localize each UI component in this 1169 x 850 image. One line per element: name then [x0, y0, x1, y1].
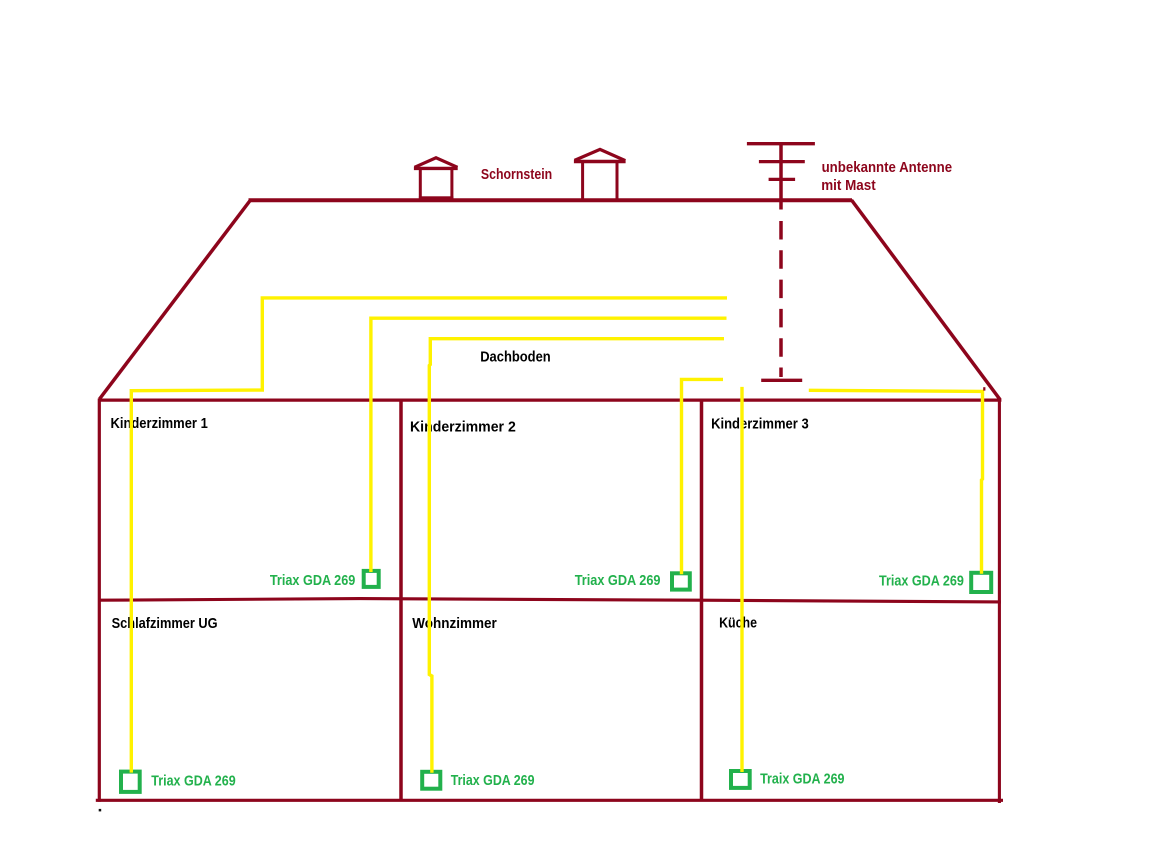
svg-text:Schornstein: Schornstein — [481, 166, 552, 183]
svg-text:Triax GDA 269: Triax GDA 269 — [151, 772, 235, 789]
svg-text:Wohnzimmer: Wohnzimmer — [412, 615, 497, 632]
svg-text:Kinderzimmer 1: Kinderzimmer 1 — [111, 415, 208, 432]
svg-text:Traix GDA 269: Traix GDA 269 — [760, 770, 844, 787]
svg-text:unbekannte Antenne: unbekannte Antenne — [822, 159, 953, 176]
svg-text:mit Mast: mit Mast — [821, 177, 876, 194]
svg-text:Kinderzimmer 2: Kinderzimmer 2 — [410, 418, 516, 435]
svg-text:Triax GDA 269: Triax GDA 269 — [575, 572, 661, 589]
svg-text:Triax GDA 269: Triax GDA 269 — [270, 572, 355, 589]
svg-text:Küche: Küche — [719, 614, 757, 631]
svg-text:Kinderzimmer 3: Kinderzimmer 3 — [711, 415, 809, 432]
svg-text:Triax GDA 269: Triax GDA 269 — [451, 772, 535, 789]
svg-text:Dachboden: Dachboden — [480, 348, 551, 365]
svg-text:Triax GDA 269: Triax GDA 269 — [879, 572, 964, 589]
svg-text:Schlafzimmer UG: Schlafzimmer UG — [112, 615, 218, 632]
